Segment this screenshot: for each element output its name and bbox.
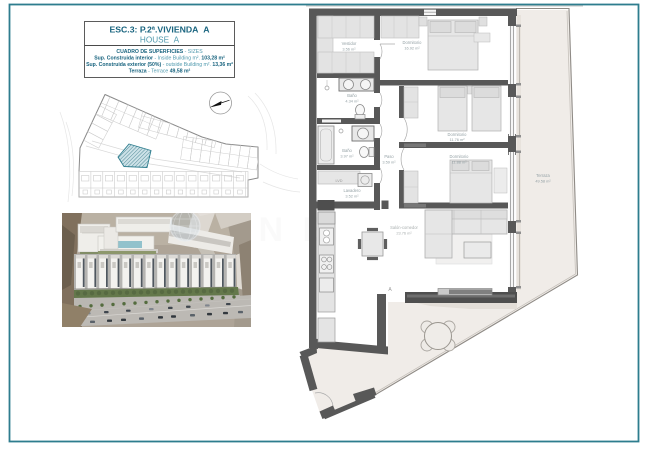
svg-text:Sup. Construida interior - Ins: Sup. Construida interior - Inside Buildi… [94, 56, 225, 62]
svg-text:23.76 m²: 23.76 m² [396, 230, 412, 235]
svg-text:Vestidor: Vestidor [342, 41, 357, 46]
svg-text:CUADRO DE SUPERFICIES - SIZES: CUADRO DE SUPERFICIES - SIZES [116, 49, 203, 55]
svg-text:Terraza - Terrace 49,58 m²: Terraza - Terrace 49,58 m² [129, 68, 191, 74]
svg-text:Sup. Construida exterior (50%): Sup. Construida exterior (50%) - outside… [86, 62, 233, 68]
svg-text:3.52 m²: 3.52 m² [345, 193, 359, 198]
svg-text:11.88 m²: 11.88 m² [451, 159, 467, 164]
svg-text:ESC.3: P.2ª.VIVIENDA A: ESC.3: P.2ª.VIVIENDA A [109, 25, 210, 35]
svg-text:Dormitorio: Dormitorio [450, 154, 470, 159]
svg-text:11.76 m²: 11.76 m² [449, 137, 465, 142]
svg-text:3.56 m²: 3.56 m² [342, 46, 356, 51]
svg-text:Baño: Baño [347, 93, 357, 98]
svg-text:3.59 m²: 3.59 m² [382, 159, 396, 164]
svg-text:49.58 m²: 49.58 m² [535, 178, 551, 183]
svg-text:Terraza: Terraza [536, 173, 550, 178]
svg-text:Baño: Baño [342, 148, 352, 153]
svg-text:Salón-comedor: Salón-comedor [390, 225, 418, 230]
svg-text:HOUSE A: HOUSE A [140, 36, 180, 45]
svg-text:Lavadero: Lavadero [343, 188, 361, 193]
svg-text:Dormitorio: Dormitorio [403, 40, 423, 45]
svg-text:16.92 m²: 16.92 m² [404, 45, 420, 50]
svg-text:Paso: Paso [384, 154, 394, 159]
svg-text:LVD: LVD [335, 179, 342, 183]
svg-text:4.34 m²: 4.34 m² [345, 98, 359, 103]
svg-text:3.97 m²: 3.97 m² [340, 153, 354, 158]
